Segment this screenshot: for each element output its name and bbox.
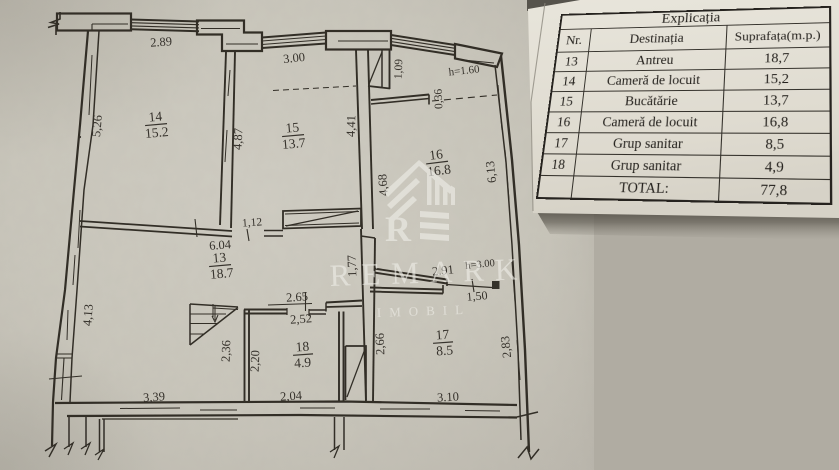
svg-text:R: R: [385, 209, 412, 249]
svg-text:2,52: 2,52: [290, 311, 313, 326]
svg-text:2,36: 2,36: [219, 340, 234, 362]
svg-text:1,12: 1,12: [242, 216, 263, 229]
svg-text:2,20: 2,20: [248, 350, 263, 372]
svg-text:1,09: 1,09: [393, 59, 406, 80]
svg-text:6.04: 6.04: [209, 237, 233, 253]
svg-text:17: 17: [435, 327, 450, 343]
svg-text:13.7: 13.7: [281, 135, 306, 152]
svg-text:4,41: 4,41: [344, 115, 359, 137]
svg-text:3,39: 3,39: [143, 389, 166, 404]
svg-text:4,87: 4,87: [230, 128, 245, 151]
svg-text:18.7: 18.7: [209, 265, 234, 282]
svg-text:2,04: 2,04: [280, 388, 304, 404]
svg-text:8.5: 8.5: [436, 342, 454, 358]
svg-text:2,66: 2,66: [373, 333, 388, 355]
svg-text:3.00: 3.00: [282, 50, 305, 66]
svg-text:3.10: 3.10: [437, 389, 460, 404]
svg-text:4,13: 4,13: [80, 304, 95, 327]
svg-text:REMARK: REMARK: [329, 251, 529, 293]
svg-text:14: 14: [148, 108, 163, 124]
svg-text:18: 18: [295, 339, 310, 355]
svg-text:15.2: 15.2: [144, 124, 169, 141]
svg-text:5,26: 5,26: [89, 114, 105, 137]
svg-text:0,36: 0,36: [433, 88, 446, 109]
svg-text:6,13: 6,13: [483, 160, 499, 183]
svg-text:15: 15: [285, 119, 300, 135]
svg-text:2.89: 2.89: [150, 34, 173, 49]
svg-text:2,83: 2,83: [498, 335, 514, 358]
svg-text:2.65: 2.65: [286, 289, 309, 304]
svg-text:4.9: 4.9: [294, 354, 312, 370]
svg-text:16: 16: [428, 146, 443, 163]
